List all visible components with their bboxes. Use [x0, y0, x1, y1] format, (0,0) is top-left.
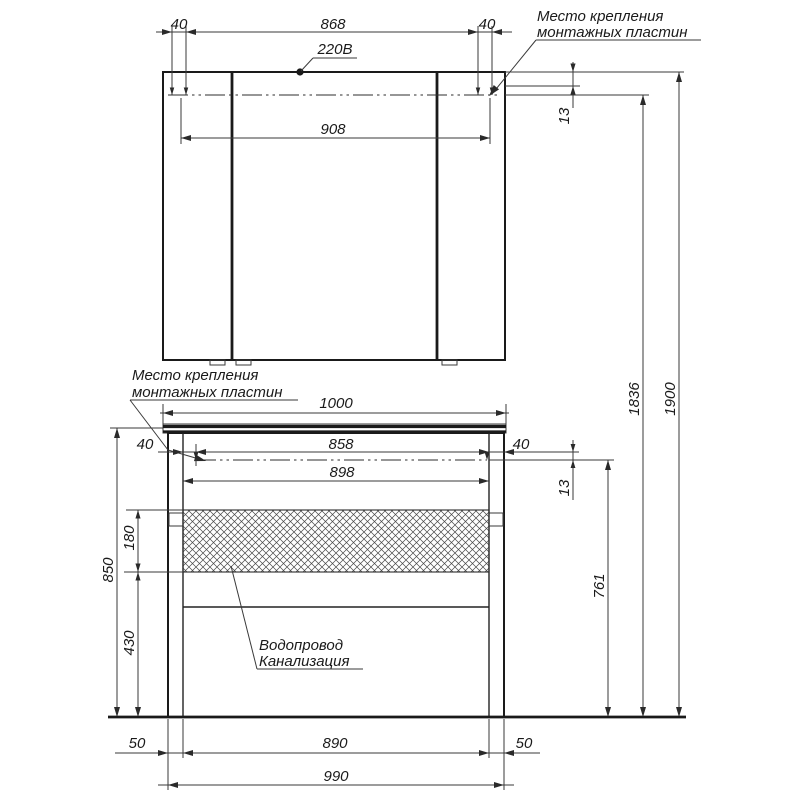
dim-v-offset-right: 40: [513, 436, 530, 453]
vanity-right-dimensions: 13 761: [489, 440, 614, 717]
dim-v-height: 850: [100, 557, 117, 583]
mounting-label-bottom-line2: монтажных пластин: [132, 384, 282, 401]
dim-v-inner: 898: [329, 464, 355, 481]
mounting-label-top: Место крепления монтажных пластин: [486, 8, 701, 98]
dim-v-span: 858: [328, 436, 354, 453]
plumbing-callout: Водопровод Канализация: [231, 566, 363, 670]
dim-hatch-height: 180: [121, 525, 138, 551]
dim-mc-offset-left: 40: [171, 16, 188, 33]
dim-v-mount-height: 761: [591, 573, 608, 598]
mounting-label-bottom-line1: Место крепления: [132, 367, 258, 384]
dim-mc-gap: 13: [556, 107, 573, 124]
installation-drawing: 40 868 40 908 220В Место крепления монта…: [0, 0, 800, 800]
dim-mc-span: 868: [320, 16, 346, 33]
vanity-left-dimensions: 850 180 430: [100, 428, 183, 717]
leader-line: [231, 566, 257, 669]
mounting-label-bottom: Место крепления монтажных пластин: [130, 367, 298, 464]
mounting-label-top-line1: Место крепления: [537, 8, 663, 25]
dim-clearance-height: 430: [121, 630, 138, 656]
dim-mc-offset-right: 40: [479, 16, 496, 33]
dim-leg-right: 50: [516, 735, 533, 752]
dim-mount-height: 1836: [626, 382, 643, 416]
power-label: 220В: [316, 41, 352, 58]
dim-v-width: 990: [323, 768, 349, 785]
mirror-right-dimensions: 13: [505, 62, 684, 124]
mounting-label-top-line2: монтажных пластин: [537, 24, 687, 41]
dim-leg-left: 50: [129, 735, 146, 752]
plumbing-zone-hatch: [183, 510, 489, 572]
dim-leg-span: 890: [322, 735, 348, 752]
dim-v-gap: 13: [556, 479, 573, 496]
dim-v-offset-left: 40: [137, 436, 154, 453]
height-dimensions: 1836 1900: [626, 72, 682, 717]
vanity-top-dimensions: 40 858 40: [137, 436, 579, 466]
mount-bracket-left: [169, 513, 183, 526]
vanity-bottom-dimensions: 50 890 50 990: [115, 719, 540, 790]
dim-total-height: 1900: [662, 382, 679, 416]
water-label: Водопровод: [259, 637, 343, 654]
sewer-label: Канализация: [259, 653, 350, 670]
dim-mc-width: 908: [320, 121, 346, 138]
vanity-inner-dimension: 898: [183, 464, 489, 484]
power-callout: 220В: [296, 41, 357, 76]
mirror-908-dimension: 908: [181, 98, 490, 144]
technical-drawing-page: 40 868 40 908 220В Место крепления монта…: [0, 0, 800, 800]
mount-bracket-right: [489, 513, 503, 526]
mirror-cabinet-outline: [163, 72, 505, 365]
dim-countertop-width: 1000: [319, 395, 353, 412]
